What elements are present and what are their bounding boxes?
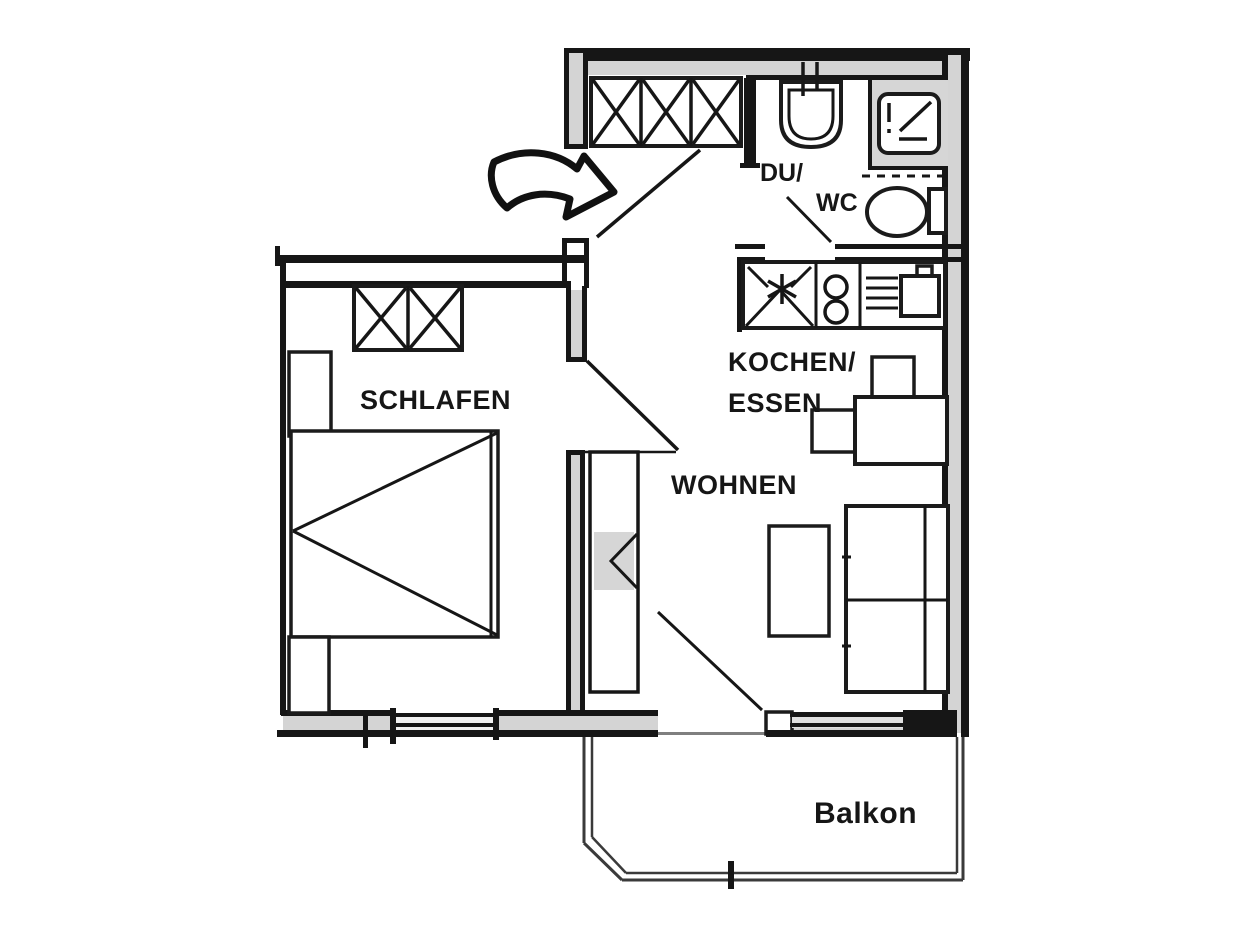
bedroom-wardrobe — [354, 286, 462, 350]
label-wc: WC — [816, 189, 858, 217]
nightstand — [289, 352, 331, 436]
bed — [291, 431, 498, 637]
sofa — [842, 506, 948, 692]
balcony-door-swing — [658, 612, 762, 710]
bedroom-door-swing — [587, 361, 678, 450]
floor-plan-page: SCHLAFEN WOHNEN KOCHEN/ ESSEN DU/ WC Bal… — [0, 0, 1250, 938]
dining-table — [855, 397, 947, 464]
toilet-icon — [867, 188, 946, 236]
label-du: DU/ — [760, 159, 803, 187]
floorplan-svg: SCHLAFEN WOHNEN KOCHEN/ ESSEN DU/ WC Bal… — [0, 0, 1250, 938]
shower-icon — [862, 80, 948, 176]
label-essen: ESSEN — [728, 388, 822, 418]
entrance-arrow — [491, 153, 614, 217]
label-kochen: KOCHEN/ — [728, 347, 856, 377]
hall-wardrobe — [591, 78, 741, 146]
bathroom-fixtures — [781, 62, 948, 236]
kitchen-counter — [743, 262, 945, 328]
dresser — [289, 637, 329, 713]
balcony-door-opening — [658, 712, 766, 735]
dining-chair-top — [872, 357, 914, 400]
label-balkon: Balkon — [814, 797, 917, 830]
corridor-shelf — [590, 452, 638, 692]
balcony-rail-mark — [728, 861, 734, 889]
bedroom-furniture — [289, 286, 498, 713]
label-wohnen: WOHNEN — [671, 470, 797, 500]
coffee-table — [769, 526, 829, 636]
label-schlafen: SCHLAFEN — [360, 385, 511, 415]
